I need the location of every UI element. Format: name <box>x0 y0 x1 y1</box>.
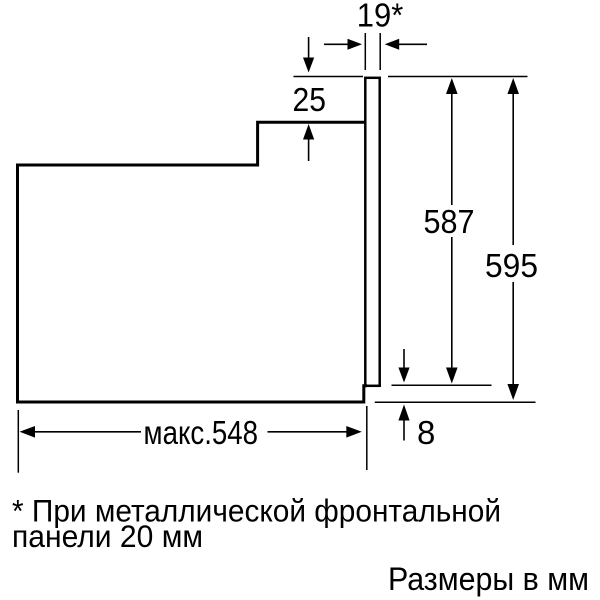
svg-text:19*: 19* <box>357 0 404 34</box>
svg-text:8: 8 <box>417 414 435 451</box>
svg-text:595: 595 <box>485 247 538 284</box>
svg-text:макс.548: макс.548 <box>144 414 259 451</box>
svg-text:Размеры в мм: Размеры в мм <box>388 561 589 597</box>
svg-text:25: 25 <box>293 81 327 118</box>
svg-text:панели 20 мм: панели 20 мм <box>12 518 203 554</box>
svg-text:587: 587 <box>424 203 475 240</box>
